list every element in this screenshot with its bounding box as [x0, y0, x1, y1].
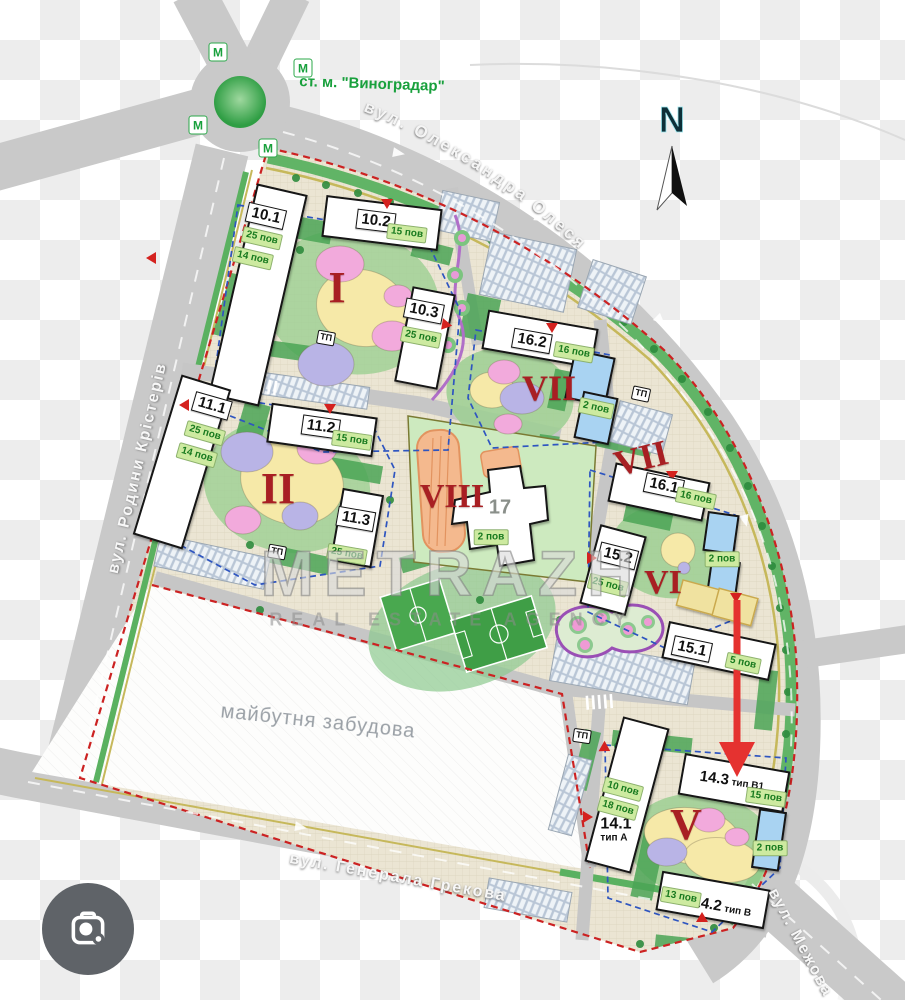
north-label: N — [659, 99, 685, 140]
site-plan-map[interactable]: N вул. Олександра Олеся вул. Родини Кріс… — [0, 0, 905, 1000]
block-number-i: I — [328, 266, 345, 310]
kindergarten-building-vi — [704, 512, 739, 554]
transformer-station-label: ТП — [267, 544, 287, 561]
metro-marker-icon: М — [189, 116, 208, 135]
metro-marker-icon: М — [259, 139, 278, 158]
building-type: тип А — [600, 833, 631, 844]
metro-marker-icon: М — [209, 43, 228, 62]
camera-lens-button[interactable] — [42, 883, 134, 975]
north-arrow-icon: N — [657, 99, 687, 210]
block-number-vii: VII — [522, 370, 576, 406]
floors-badge: 2 пов — [753, 840, 788, 856]
metro-marker-icon: М — [294, 59, 313, 78]
block-number-viii: VIII — [420, 480, 484, 514]
building-number: 14.1 — [600, 816, 631, 833]
building-label-14-1: 14.1 тип А — [600, 816, 631, 843]
block-number-vi: VI — [644, 566, 682, 600]
transformer-station-label: ТП — [572, 728, 592, 744]
transformer-station-label: ТП — [316, 330, 336, 347]
block-number-ii: II — [261, 467, 295, 511]
camera-icon — [65, 906, 111, 952]
block-number-v: V — [670, 803, 702, 847]
floors-badge: 2 пов — [705, 551, 740, 567]
floors-badge: 2 пов — [474, 529, 509, 545]
building-label-17: 17 — [489, 497, 511, 520]
